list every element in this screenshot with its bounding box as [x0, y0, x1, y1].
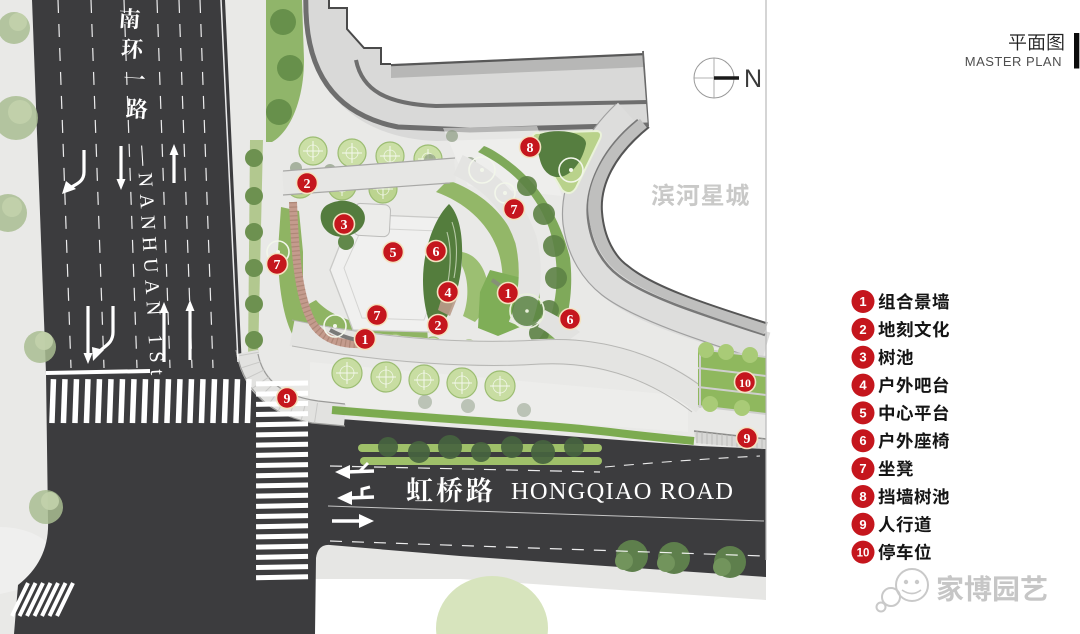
- svg-text:1: 1: [505, 287, 512, 302]
- svg-text:6: 6: [859, 433, 866, 448]
- svg-text:1: 1: [362, 333, 369, 348]
- svg-text:5: 5: [390, 246, 397, 261]
- svg-text:1: 1: [859, 294, 866, 309]
- svg-text:N: N: [744, 65, 762, 93]
- svg-text:6: 6: [567, 313, 574, 328]
- svg-text:7: 7: [511, 203, 518, 218]
- svg-text:3: 3: [859, 350, 866, 365]
- svg-text:4: 4: [445, 286, 452, 301]
- svg-text:6: 6: [433, 245, 440, 260]
- svg-text:HONGQIAO ROAD: HONGQIAO ROAD: [511, 478, 734, 505]
- svg-text:MASTER PLAN: MASTER PLAN: [965, 54, 1062, 69]
- svg-text:9: 9: [744, 432, 751, 447]
- svg-text:7: 7: [274, 258, 281, 273]
- svg-text:7: 7: [859, 461, 866, 476]
- svg-text:3: 3: [341, 218, 348, 233]
- svg-text:8: 8: [527, 141, 534, 156]
- svg-text:4: 4: [859, 378, 867, 393]
- svg-text:9: 9: [284, 392, 291, 407]
- svg-text:10: 10: [739, 376, 751, 390]
- svg-text:2: 2: [435, 319, 442, 334]
- svg-text:8: 8: [859, 489, 866, 504]
- svg-text:2: 2: [304, 177, 311, 192]
- svg-text:7: 7: [374, 309, 381, 324]
- svg-text:9: 9: [859, 517, 866, 532]
- svg-text:5: 5: [859, 405, 866, 420]
- svg-text:10: 10: [857, 548, 870, 560]
- svg-text:2: 2: [859, 322, 866, 337]
